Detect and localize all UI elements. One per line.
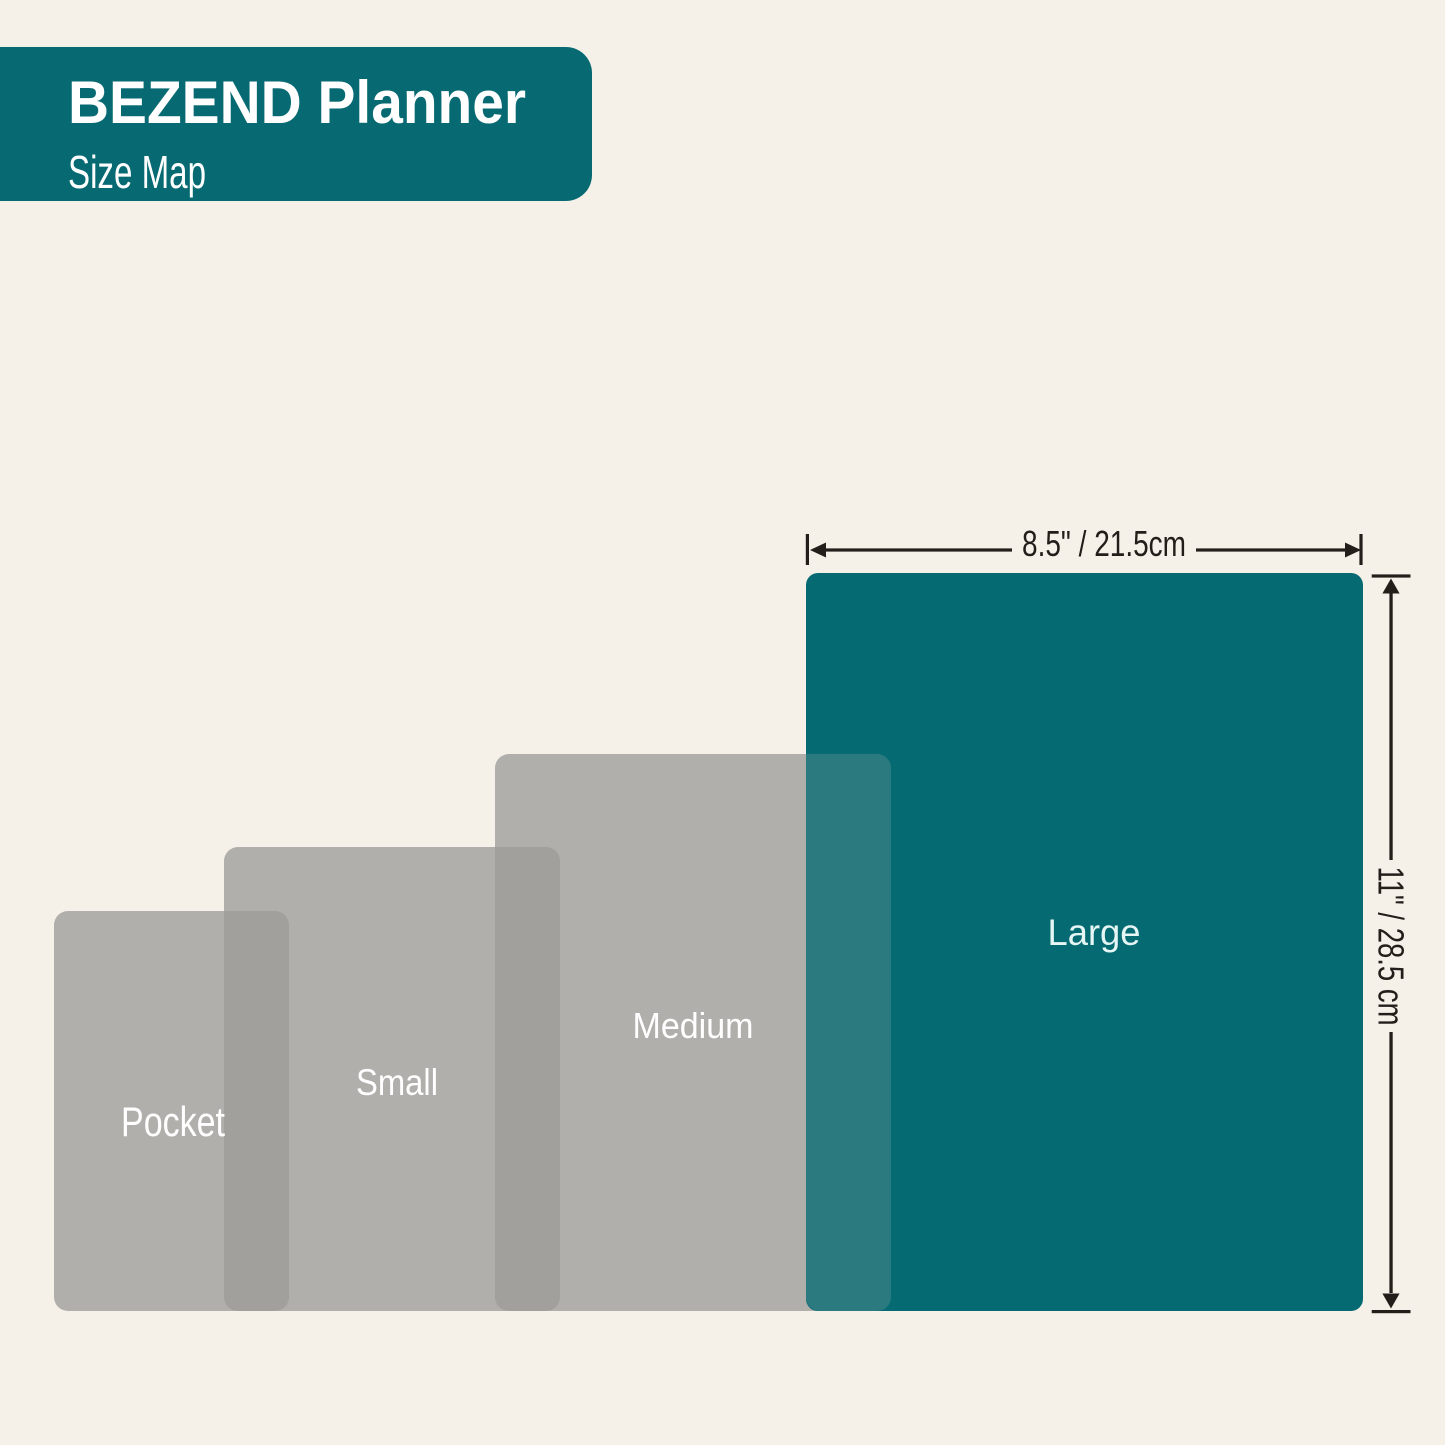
svg-text:8.5" / 21.5cm: 8.5" / 21.5cm [1022,523,1186,564]
svg-text:BEZEND Planner: BEZEND Planner [68,69,526,136]
svg-text:Medium: Medium [633,1005,754,1046]
svg-text:Pocket: Pocket [121,1098,225,1145]
svg-text:Small: Small [356,1062,438,1103]
svg-text:Size Map: Size Map [68,146,206,198]
svg-text:Large: Large [1048,912,1141,953]
svg-text:11" / 28.5 cm: 11" / 28.5 cm [1371,867,1412,1026]
